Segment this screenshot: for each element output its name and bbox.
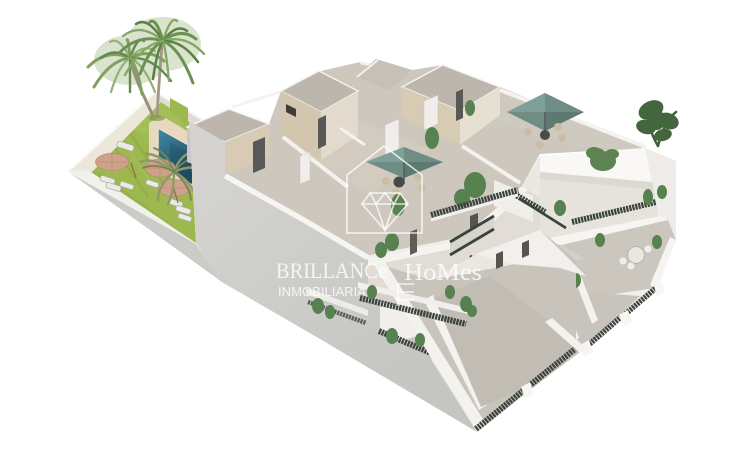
svg-text:HoMes: HoMes — [404, 260, 482, 286]
svg-text:INMOBILIARIA: INMOBILIARIA — [278, 285, 367, 299]
svg-text:BRILLANCe: BRILLANCe — [276, 258, 387, 283]
